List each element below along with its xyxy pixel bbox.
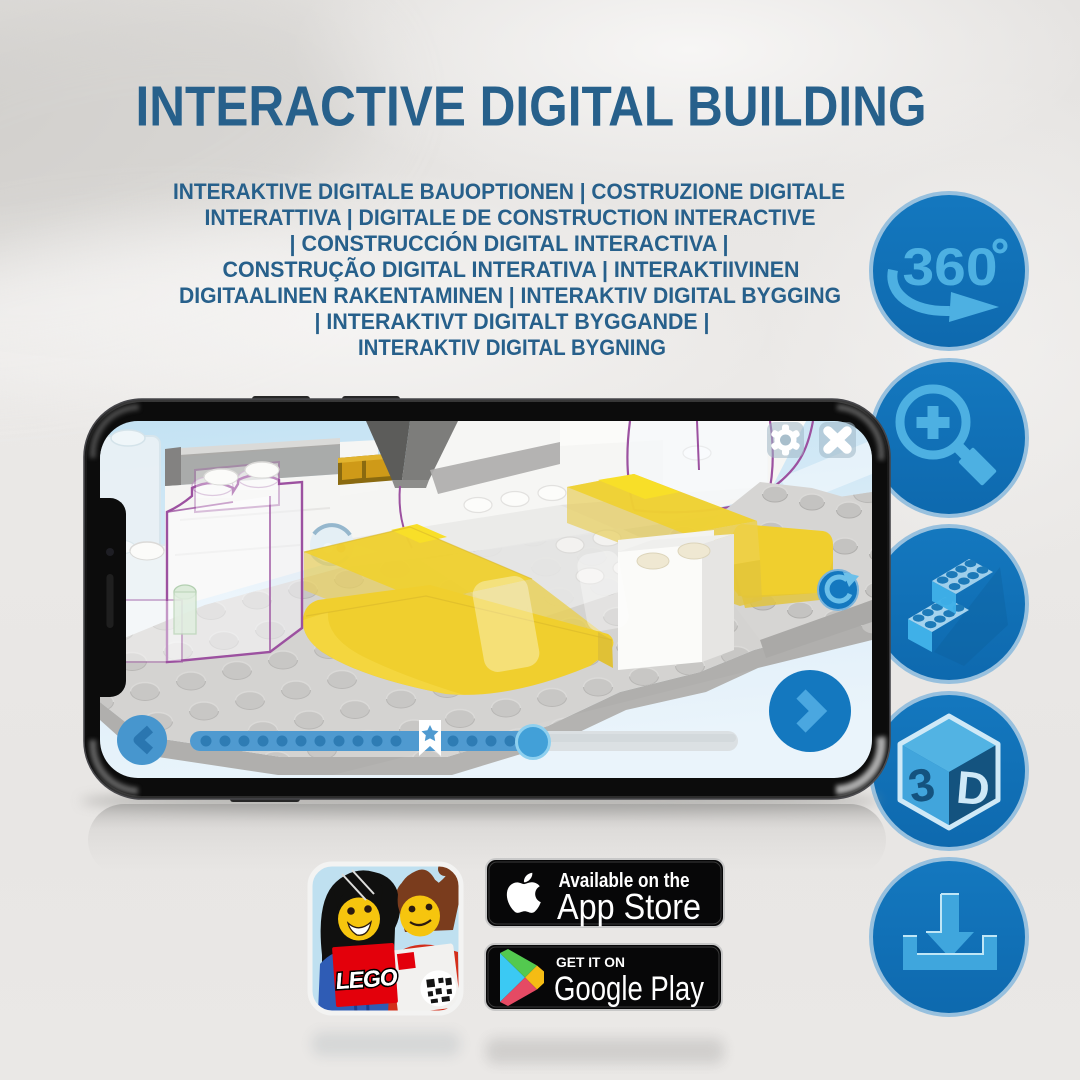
svg-text:INTERAKTIV DIGITAL BYGNING: INTERAKTIV DIGITAL BYGNING <box>358 335 666 360</box>
svg-text:INTERAKTIVE DIGITALE BAUOPTION: INTERAKTIVE DIGITALE BAUOPTIONEN | COSTR… <box>173 179 845 204</box>
svg-text:CONSTRUÇÃO DIGITAL INTERATIVA: CONSTRUÇÃO DIGITAL INTERATIVA | INTERAKT… <box>223 257 800 282</box>
svg-text:GET IT ON: GET IT ON <box>556 954 625 970</box>
svg-text:| CONSTRUCCIÓN DIGITAL INTERAC: | CONSTRUCCIÓN DIGITAL INTERACTIVA | <box>290 231 729 256</box>
svg-text:DIGITAALINEN RAKENTAMINEN | IN: DIGITAALINEN RAKENTAMINEN | INTERAKTIV D… <box>179 283 841 308</box>
svg-text:LEGO: LEGO <box>335 964 398 994</box>
svg-text:App Store: App Store <box>557 886 701 927</box>
svg-text:INTERATTIVA | DIGITALE DE CONS: INTERATTIVA | DIGITALE DE CONSTRUCTION I… <box>205 205 816 230</box>
svg-text:| INTERAKTIVT DIGITALT BYGGAND: | INTERAKTIVT DIGITALT BYGGANDE | <box>315 309 710 334</box>
svg-text:360: 360 <box>903 238 998 297</box>
svg-text:Google Play: Google Play <box>554 970 704 1008</box>
svg-text:INTERACTIVE DIGITAL BUILDING: INTERACTIVE DIGITAL BUILDING <box>136 75 927 138</box>
svg-text:D: D <box>954 761 992 816</box>
